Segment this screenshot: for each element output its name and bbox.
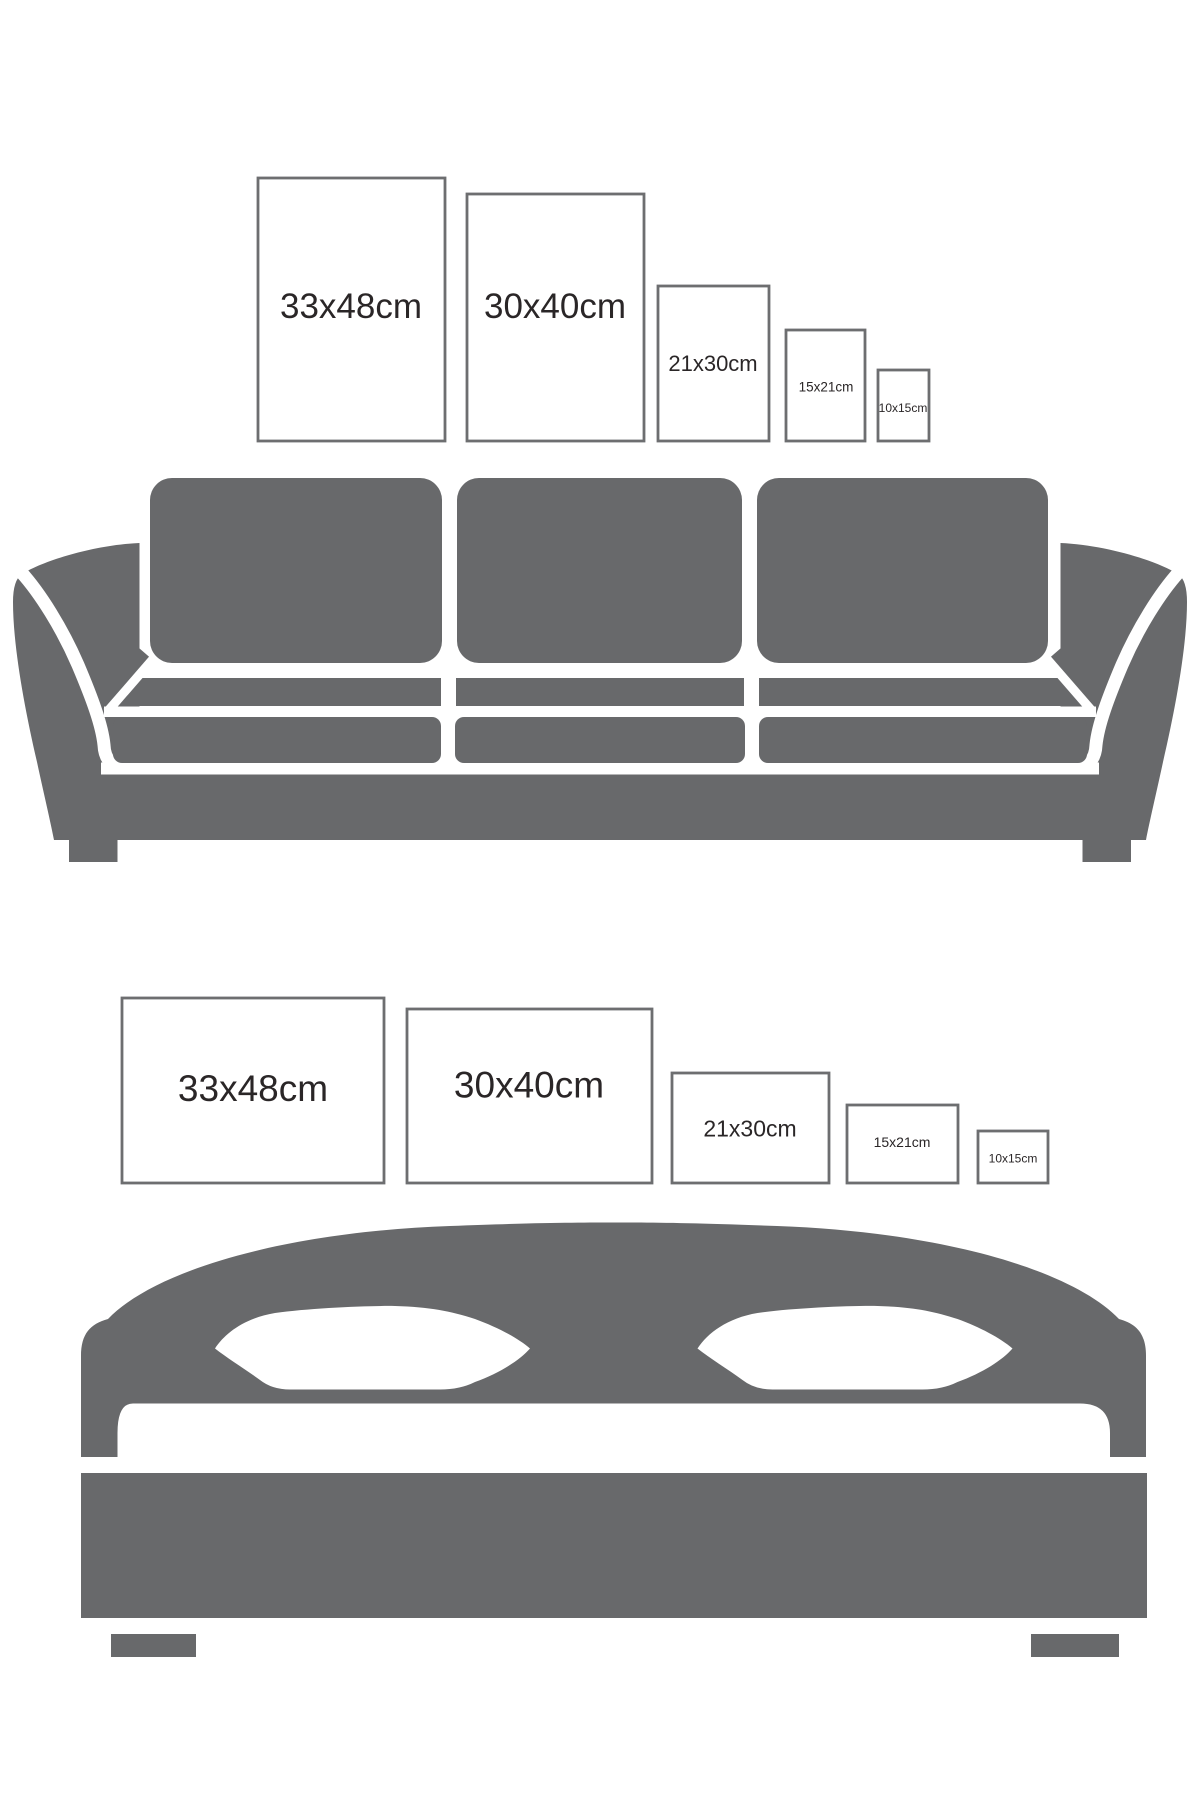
svg-text:10x15cm: 10x15cm [989, 1152, 1038, 1166]
svg-text:21x30cm: 21x30cm [668, 351, 757, 376]
svg-text:10x15cm: 10x15cm [879, 401, 928, 415]
svg-text:30x40cm: 30x40cm [454, 1065, 604, 1106]
svg-text:15x21cm: 15x21cm [874, 1134, 931, 1150]
svg-text:33x48cm: 33x48cm [178, 1068, 328, 1109]
svg-text:30x40cm: 30x40cm [484, 287, 626, 326]
svg-text:21x30cm: 21x30cm [703, 1116, 796, 1142]
svg-text:33x48cm: 33x48cm [280, 287, 422, 326]
svg-text:15x21cm: 15x21cm [799, 380, 854, 395]
